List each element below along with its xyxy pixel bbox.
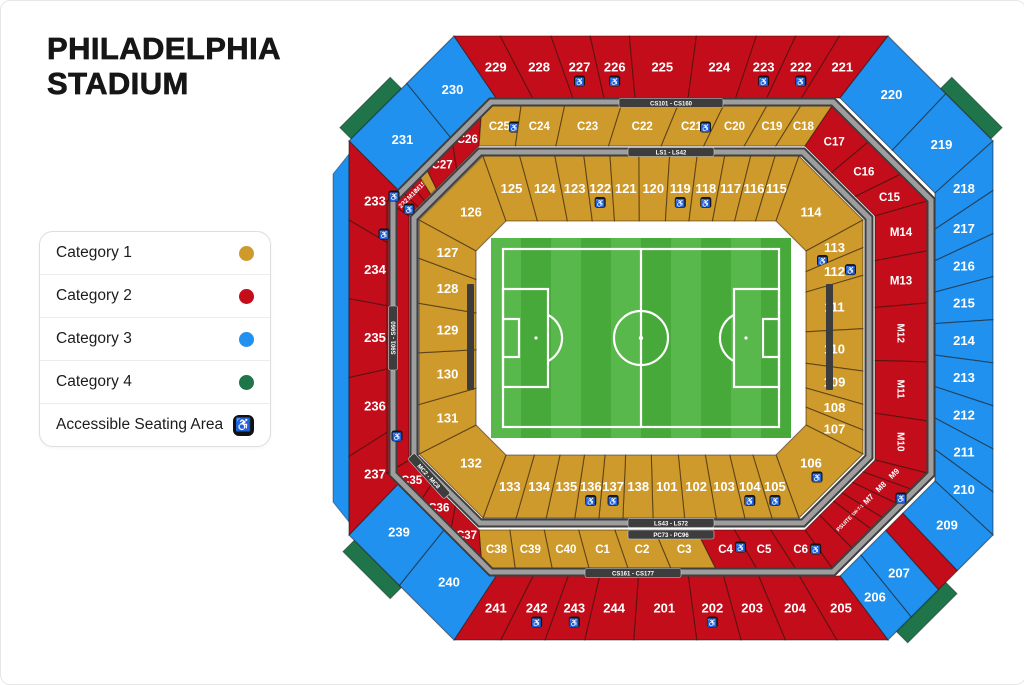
- legend-item-accessible: Accessible Seating Area♿: [40, 403, 270, 446]
- wheelchair-icon: ♿: [531, 617, 542, 628]
- pitch-stripe: [581, 238, 611, 438]
- wheelchair-icon: ♿: [896, 493, 907, 504]
- section-label-138: 138: [627, 479, 649, 494]
- legend-item-cat4: Category 4: [40, 360, 270, 403]
- pitch-stripe: [761, 238, 791, 438]
- svg-text:♿: ♿: [569, 617, 579, 627]
- section-label-C2: C2: [635, 544, 650, 556]
- svg-text:♿: ♿: [595, 198, 605, 208]
- section-label-202: 202: [702, 601, 724, 616]
- section-label-134: 134: [528, 479, 550, 494]
- wheelchair-icon: ♿: [675, 197, 686, 208]
- svg-text:♿: ♿: [379, 229, 389, 239]
- section-label-240: 240: [438, 575, 460, 590]
- wheelchair-icon: ♿: [585, 495, 596, 506]
- section-label-222: 222: [790, 60, 812, 75]
- section-label-C15: C15: [879, 192, 901, 204]
- section-label-209: 209: [936, 518, 958, 533]
- section-label-237: 237: [364, 466, 386, 481]
- section-label-C39: C39: [520, 544, 541, 556]
- legend-item-cat3: Category 3: [40, 317, 270, 360]
- section-label-114: 114: [801, 205, 823, 220]
- section-label-221: 221: [831, 60, 853, 75]
- section-label-104: 104: [739, 479, 761, 494]
- svg-text:♿: ♿: [811, 544, 821, 554]
- legend-color-dot: [239, 332, 254, 347]
- stadium-map: 231230229228227♿226♿225224223♿222♿221220…: [331, 6, 1003, 678]
- section-label-M12: M12: [895, 323, 906, 343]
- legend-item-label: Category 4: [56, 373, 132, 391]
- section-label-125: 125: [501, 181, 523, 196]
- section-label-133: 133: [499, 479, 521, 494]
- wheelchair-icon: ♿: [609, 76, 620, 87]
- section-label-C5: C5: [757, 544, 772, 556]
- section-label-219: 219: [931, 137, 953, 152]
- svg-text:♿: ♿: [532, 617, 542, 627]
- section-label-M11: M11: [895, 380, 906, 399]
- section-label-103: 103: [713, 479, 735, 494]
- section-label-235: 235: [364, 330, 386, 345]
- section-label-127: 127: [437, 245, 459, 260]
- section-label-223: 223: [753, 60, 775, 75]
- section-outer-left-strip[interactable]: [333, 154, 349, 522]
- section-label-228: 228: [528, 60, 550, 75]
- legend-card: Category 1Category 2Category 3Category 4…: [39, 231, 271, 447]
- wheelchair-icon: ♿: [569, 617, 580, 628]
- section-label-205: 205: [830, 601, 852, 616]
- section-label-121: 121: [615, 181, 637, 196]
- stadium-seatmap-page: PHILADELPHIA STADIUM Category 1Category …: [0, 0, 1024, 685]
- section-label-117: 117: [720, 181, 741, 196]
- legend-color-dot: [239, 246, 254, 261]
- section-label-204: 204: [784, 601, 806, 616]
- wheelchair-icon: ♿: [812, 472, 823, 483]
- legend-color-dot: [239, 375, 254, 390]
- wheelchair-icon: ♿: [845, 264, 856, 275]
- wheelchair-icon: ♿: [608, 495, 619, 506]
- level-band-label: S901 - S960: [391, 321, 397, 355]
- level-band-top_inner: LS1 - LS42: [628, 148, 714, 157]
- section-label-M14: M14: [890, 227, 913, 239]
- wheelchair-icon: ♿: [758, 76, 769, 87]
- svg-text:♿: ♿: [770, 496, 780, 506]
- section-label-239: 239: [388, 525, 410, 540]
- wheelchair-icon: ♿: [769, 495, 780, 506]
- pitch-stripe: [701, 238, 731, 438]
- legend-item-cat1: Category 1: [40, 232, 270, 274]
- section-label-211: 211: [954, 445, 975, 460]
- section-label-115: 115: [766, 181, 787, 196]
- section-label-C19: C19: [761, 121, 782, 133]
- level-band-bottom_inner_2: PC73 - PC96: [628, 530, 714, 539]
- wheelchair-icon: ♿: [707, 617, 718, 628]
- section-label-226: 226: [604, 60, 626, 75]
- legend-item-cat2: Category 2: [40, 274, 270, 317]
- section-label-233: 233: [364, 194, 386, 209]
- soccer-pitch: [491, 238, 791, 438]
- pitch-stripe: [671, 238, 701, 438]
- pitch-stripe: [611, 238, 641, 438]
- wheelchair-icon: ♿: [735, 542, 746, 553]
- section-label-105: 105: [764, 479, 786, 494]
- svg-text:♿: ♿: [701, 122, 711, 132]
- svg-text:♿: ♿: [896, 493, 906, 503]
- section-label-206: 206: [864, 590, 886, 605]
- section-label-118: 118: [695, 181, 716, 196]
- wheelchair-icon: ♿: [700, 197, 711, 208]
- section-label-119: 119: [670, 181, 691, 196]
- sideline-board-right: [826, 284, 833, 390]
- section-label-C16: C16: [853, 166, 874, 178]
- section-label-213: 213: [953, 370, 975, 385]
- legend-item-label: Category 1: [56, 244, 132, 262]
- section-label-132: 132: [460, 456, 482, 471]
- section-label-C23: C23: [577, 121, 598, 133]
- section-label-122: 122: [589, 181, 611, 196]
- section-label-203: 203: [741, 601, 763, 616]
- wheelchair-icon: ♿: [795, 76, 806, 87]
- section-label-217: 217: [953, 221, 975, 236]
- penalty-spot-left: [534, 336, 537, 339]
- section-label-242: 242: [526, 601, 548, 616]
- wheelchair-icon: ♿: [810, 544, 821, 555]
- section-label-106: 106: [800, 456, 822, 471]
- svg-text:♿: ♿: [575, 76, 585, 86]
- section-label-234: 234: [364, 262, 386, 277]
- legend-rows: Category 1Category 2Category 3Category 4…: [40, 232, 270, 446]
- svg-text:♿: ♿: [846, 265, 856, 275]
- center-spot: [639, 336, 643, 340]
- level-band-label: PC73 - PC96: [653, 533, 689, 539]
- section-label-C22: C22: [632, 121, 653, 133]
- legend-color-dot: [239, 289, 254, 304]
- section-label-212: 212: [953, 407, 975, 422]
- wheelchair-icon: ♿: [379, 229, 390, 240]
- wheelchair-icon: ♿: [744, 495, 755, 506]
- svg-text:♿: ♿: [608, 496, 618, 506]
- section-label-210: 210: [953, 482, 975, 497]
- section-label-C3: C3: [677, 544, 692, 556]
- section-label-C25: C25: [489, 121, 511, 133]
- wheelchair-icon: ♿: [392, 431, 403, 442]
- section-label-216: 216: [953, 258, 975, 273]
- section-label-C20: C20: [724, 121, 745, 133]
- legend-item-label: Category 3: [56, 330, 132, 348]
- wheelchair-icon: ♿: [595, 197, 606, 208]
- section-label-C17: C17: [824, 137, 845, 149]
- section-label-101: 101: [656, 479, 678, 494]
- section-label-227: 227: [569, 60, 591, 75]
- svg-text:♿: ♿: [404, 204, 414, 214]
- sideline-board-left: [467, 284, 474, 390]
- section-label-M13: M13: [890, 276, 912, 288]
- section-label-224: 224: [708, 60, 730, 75]
- section-label-241: 241: [485, 601, 507, 616]
- wheelchair-icon: ♿: [574, 76, 585, 87]
- section-label-108: 108: [824, 400, 846, 415]
- section-label-225: 225: [651, 60, 673, 75]
- svg-text:♿: ♿: [796, 76, 806, 86]
- section-label-130: 130: [437, 366, 459, 381]
- legend-item-label: Accessible Seating Area: [56, 416, 223, 434]
- svg-text:♿: ♿: [701, 198, 711, 208]
- section-label-220: 220: [881, 87, 903, 102]
- level-band-bottom_outer: CS161 - CS177: [585, 569, 681, 578]
- svg-text:♿: ♿: [745, 496, 755, 506]
- section-label-229: 229: [485, 60, 507, 75]
- svg-text:♿: ♿: [392, 431, 402, 441]
- section-label-120: 120: [642, 181, 664, 196]
- svg-text:♿: ♿: [812, 472, 822, 482]
- level-band-label: LS1 - LS42: [656, 150, 687, 156]
- section-label-C6: C6: [793, 544, 808, 556]
- page-title-line1: PHILADELPHIA: [47, 31, 281, 66]
- level-band-label: CS101 - CS160: [650, 101, 693, 107]
- pitch-stripe: [641, 238, 671, 438]
- level-band-left_vertical: S901 - S960: [389, 306, 398, 370]
- pitch-stripe: [551, 238, 581, 438]
- section-label-231: 231: [392, 132, 414, 147]
- section-label-123: 123: [564, 181, 586, 196]
- wheelchair-icon: ♿: [700, 122, 711, 133]
- section-label-126: 126: [460, 205, 482, 220]
- wheelchair-icon: ♿: [389, 191, 400, 202]
- svg-text:♿: ♿: [675, 198, 685, 208]
- section-label-C40: C40: [555, 544, 576, 556]
- penalty-spot-right: [744, 336, 747, 339]
- level-band-top_outer: CS101 - CS160: [619, 99, 723, 108]
- section-label-C21: C21: [681, 121, 703, 133]
- wheelchair-icon: ♿: [404, 204, 415, 215]
- section-label-107: 107: [824, 422, 846, 437]
- level-band-label: LS43 - LS72: [654, 521, 689, 527]
- section-label-215: 215: [953, 296, 975, 311]
- page-title: PHILADELPHIA STADIUM: [47, 31, 281, 101]
- level-band-label: CS161 - CS177: [612, 571, 655, 577]
- svg-text:♿: ♿: [389, 191, 399, 201]
- section-label-218: 218: [953, 181, 975, 196]
- section-label-C24: C24: [529, 121, 551, 133]
- section-label-207: 207: [888, 566, 910, 581]
- section-label-112: 112: [824, 264, 845, 279]
- section-label-201: 201: [653, 601, 675, 616]
- wheelchair-icon: ♿: [233, 415, 254, 436]
- svg-text:♿: ♿: [759, 76, 769, 86]
- section-label-214: 214: [953, 333, 975, 348]
- section-label-137: 137: [602, 479, 624, 494]
- section-label-M10: M10: [895, 432, 906, 452]
- pitch-stripe: [491, 238, 521, 438]
- section-label-113: 113: [824, 240, 845, 255]
- section-label-243: 243: [563, 601, 585, 616]
- section-label-C1: C1: [595, 544, 610, 556]
- section-label-236: 236: [364, 398, 386, 413]
- section-label-135: 135: [556, 479, 578, 494]
- svg-text:♿: ♿: [586, 496, 596, 506]
- section-label-244: 244: [603, 601, 625, 616]
- section-label-102: 102: [685, 479, 707, 494]
- legend-item-label: Category 2: [56, 287, 132, 305]
- section-label-230: 230: [442, 82, 464, 97]
- section-label-131: 131: [437, 410, 459, 425]
- section-label-136: 136: [580, 479, 602, 494]
- level-band-bottom_inner_1: LS43 - LS72: [628, 519, 714, 528]
- section-label-124: 124: [534, 181, 556, 196]
- section-label-128: 128: [437, 281, 459, 296]
- section-label-C4: C4: [718, 544, 733, 556]
- svg-text:♿: ♿: [707, 617, 717, 627]
- svg-text:♿: ♿: [610, 76, 620, 86]
- section-label-129: 129: [437, 322, 459, 337]
- section-label-C18: C18: [793, 121, 815, 133]
- page-title-line2: STADIUM: [47, 66, 281, 101]
- section-label-C38: C38: [486, 544, 508, 556]
- svg-text:♿: ♿: [736, 542, 746, 552]
- section-label-116: 116: [744, 181, 765, 196]
